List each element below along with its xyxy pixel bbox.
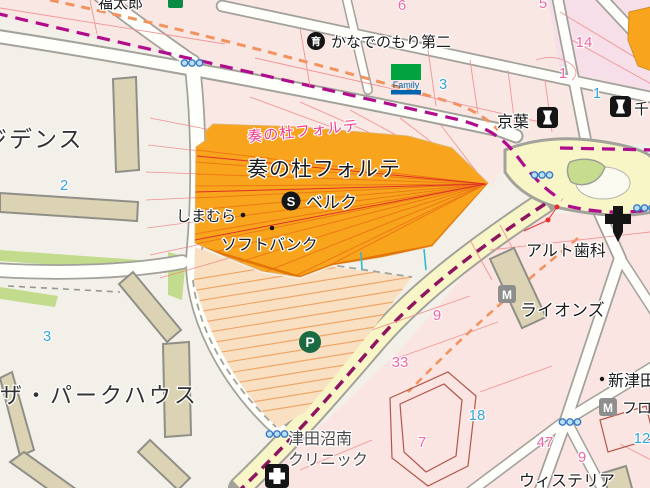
label-parkhouse: ザ・パークハウス (0, 383, 199, 408)
keiyo-bank-icon[interactable] (537, 107, 558, 128)
traffic-signal (266, 431, 287, 437)
block-number: 18 (469, 407, 486, 424)
block-number: 33 (392, 354, 409, 371)
nursery-icon[interactable]: 育 (307, 32, 325, 50)
label-kanade-daini: かなでのもり第二 (331, 33, 451, 51)
label-residence: ジデンス (0, 126, 84, 152)
label-forte-building[interactable]: 奏の杜フォルテ (247, 158, 401, 181)
block-number: 3 (439, 76, 447, 93)
mansion-icon-lions[interactable]: M (498, 285, 516, 303)
parking-icon-glyph: P (305, 334, 314, 350)
label-shimamura[interactable]: しまむら (176, 208, 236, 225)
nursery-icon-glyph: 育 (311, 35, 321, 48)
label-chiba: 千 (634, 101, 649, 118)
supermarket-icon[interactable]: S (282, 192, 301, 211)
block-number: 7 (418, 434, 426, 451)
block-number: 14 (576, 34, 593, 51)
label-wisteria: ウィステリア (519, 472, 615, 488)
parking-icon[interactable]: P (299, 331, 321, 353)
traffic-signal (559, 419, 580, 425)
block-number: 1 (559, 65, 567, 82)
clinic-hospital-icon[interactable] (265, 464, 289, 488)
block-number: 9 (578, 449, 586, 466)
familymart-sign[interactable]: Family (391, 64, 421, 95)
drugstore-icon[interactable] (168, 0, 183, 8)
familymart-label: Family (393, 80, 420, 90)
label-softbank[interactable]: ソフトバンク (221, 236, 318, 254)
traffic-signal (181, 60, 202, 66)
block-number: 47 (537, 434, 554, 451)
label-fukutaro: 福太郎 (98, 0, 143, 12)
block-number: 9 (433, 307, 441, 324)
block-number: 5 (539, 0, 547, 12)
label-belc[interactable]: ベルク (306, 193, 357, 212)
label-shintsuda: 新津田 (608, 372, 650, 390)
block-number: 6 (398, 0, 406, 14)
label-keiyo: 京葉 (497, 113, 529, 131)
label-lions: ライオンズ (520, 301, 605, 320)
chiba-bank-icon[interactable] (610, 96, 631, 117)
map-canvas[interactable]: 育 Family S P M M 福太郎 ） ジデンス (0, 0, 650, 488)
label-furo: フロー (622, 400, 650, 417)
mansion-icon-furo[interactable]: M (599, 398, 617, 416)
block-number: 1 (593, 85, 601, 102)
softbank-dot (270, 226, 275, 231)
traffic-signal (531, 172, 552, 178)
block-number: 3 (43, 328, 51, 345)
block-number: 12 (634, 430, 650, 447)
traffic-signal (634, 205, 650, 211)
supermarket-icon-glyph: S (287, 194, 296, 209)
map-svg: 育 Family S P M M 福太郎 ） ジデンス (0, 0, 650, 488)
shimamura-dot (241, 213, 246, 218)
block-number: 2 (60, 177, 68, 194)
label-clinic-line1[interactable]: 津田沼南 (288, 430, 352, 448)
label-alto-dental[interactable]: アルト歯科 (526, 242, 606, 260)
svg-text:M: M (603, 401, 613, 415)
svg-text:M: M (502, 288, 512, 302)
label-clinic-line2[interactable]: クリニック (288, 451, 368, 469)
label-paren: ） (0, 73, 17, 103)
shintsuda-dot (600, 377, 604, 381)
